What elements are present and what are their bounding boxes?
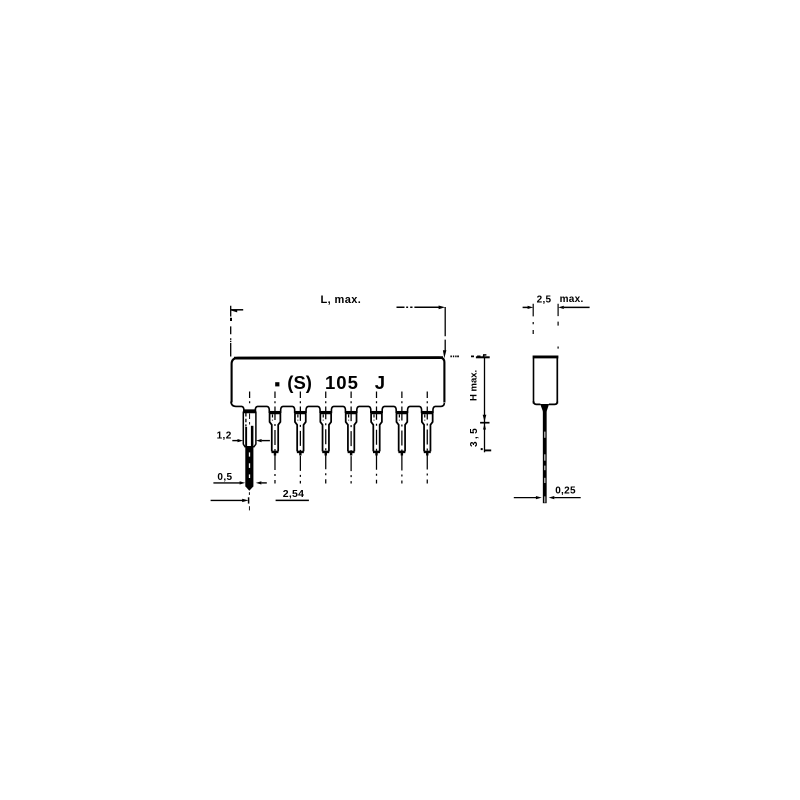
svg-text:H max.: H max.: [469, 370, 480, 401]
svg-text:1,2: 1,2: [217, 430, 232, 441]
svg-text:3,5: 3,5: [469, 426, 480, 447]
svg-text:max.: max.: [560, 294, 584, 305]
svg-text:105: 105: [325, 372, 359, 393]
svg-text:2,54: 2,54: [283, 488, 305, 500]
svg-text:0,5: 0,5: [217, 472, 232, 483]
svg-text:0,25: 0,25: [555, 486, 576, 497]
svg-text:L, max.: L, max.: [321, 294, 362, 306]
svg-text:2,5: 2,5: [537, 294, 552, 305]
svg-text:(S): (S): [287, 372, 312, 393]
svg-text:J: J: [375, 372, 385, 393]
